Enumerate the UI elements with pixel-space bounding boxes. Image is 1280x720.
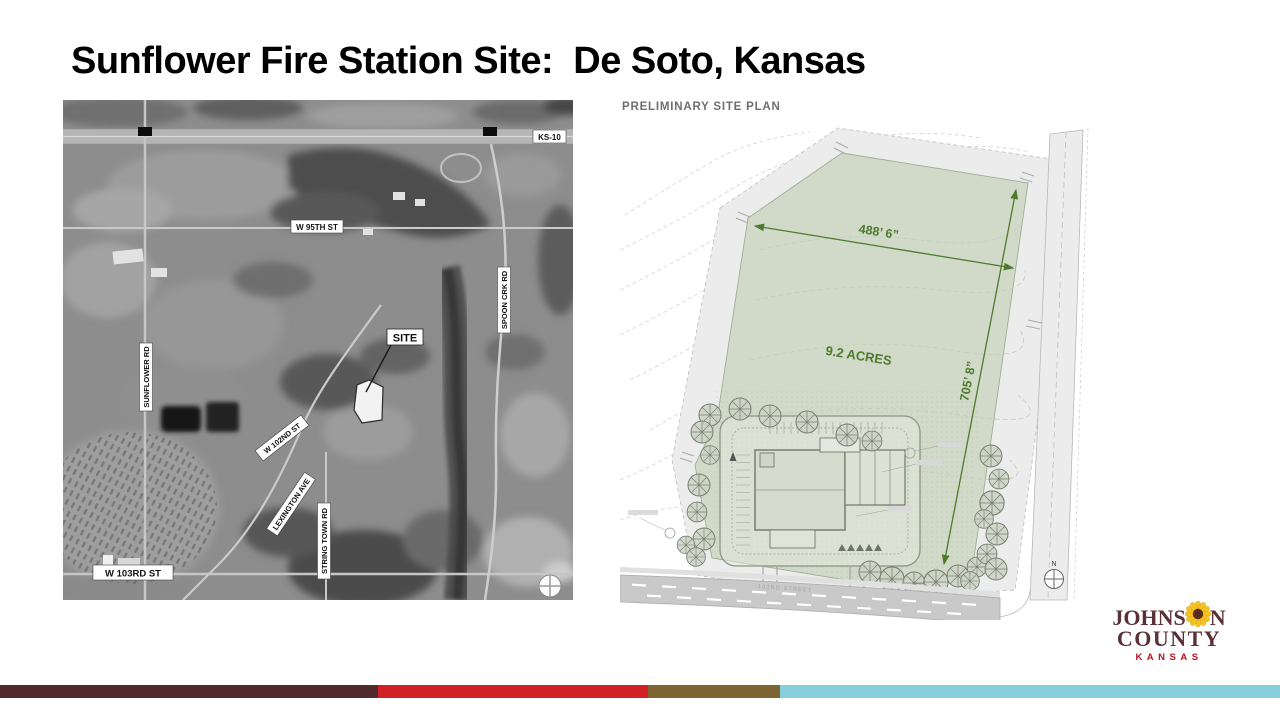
north-label: N bbox=[1051, 561, 1056, 568]
spoon-creek-label: SPOON CRK RD bbox=[498, 267, 511, 333]
svg-text:SUNFLOWER RD: SUNFLOWER RD bbox=[142, 346, 151, 408]
logo-line1: JOHNS N bbox=[1112, 601, 1226, 628]
w95th-label: W 95TH ST bbox=[291, 220, 343, 233]
logo-state: KANSAS bbox=[1112, 652, 1226, 663]
johnson-county-logo: JOHNS N bbox=[1112, 601, 1226, 663]
overpass-west bbox=[138, 127, 152, 136]
svg-text:STRING TOWN RD: STRING TOWN RD bbox=[320, 507, 329, 574]
svg-text:KS-10: KS-10 bbox=[538, 133, 561, 142]
aerial-map-image: SITE KS-10 W 95TH ST SUNFLOWER RD bbox=[63, 100, 573, 600]
svg-text:W 95TH ST: W 95TH ST bbox=[296, 223, 338, 232]
aerial-map: SITE KS-10 W 95TH ST SUNFLOWER RD bbox=[63, 100, 573, 600]
site-label: SITE bbox=[393, 333, 417, 345]
svg-text:W 103RD ST: W 103RD ST bbox=[105, 569, 161, 580]
site-plan-image: 102ND STREET 488’ 6” 705’ 8” 9.2 ACRES bbox=[620, 120, 1090, 620]
stripe-olive bbox=[648, 685, 780, 698]
creek-corridor bbox=[447, 268, 462, 600]
site-plan: 102ND STREET 488’ 6” 705’ 8” 9.2 ACRES bbox=[620, 120, 1090, 620]
sunflower-rd-label: SUNFLOWER RD bbox=[140, 343, 153, 411]
stripe-dark-maroon bbox=[0, 685, 378, 698]
overpass-east bbox=[483, 127, 497, 136]
ks10-label: KS-10 bbox=[533, 130, 566, 143]
w103rd-label: W 103RD ST bbox=[93, 565, 173, 580]
logo-county: COUNTY bbox=[1112, 628, 1226, 649]
string-town-label: STRING TOWN RD bbox=[318, 503, 331, 579]
footer-stripe-bar bbox=[0, 685, 1280, 698]
site-plan-heading: PRELIMINARY SITE PLAN bbox=[622, 101, 781, 113]
logo-name-prefix: JOHNS bbox=[1112, 608, 1185, 628]
stripe-red bbox=[378, 685, 648, 698]
sunflower-icon bbox=[1185, 601, 1211, 627]
slide: Sunflower Fire Station Site: De Soto, Ka… bbox=[0, 0, 1280, 720]
svg-text:SPOON CRK RD: SPOON CRK RD bbox=[500, 270, 509, 329]
page-title: Sunflower Fire Station Site: De Soto, Ka… bbox=[71, 40, 866, 83]
aerial-compass-icon bbox=[539, 575, 561, 597]
stripe-sky-blue bbox=[780, 685, 1280, 698]
logo-name-suffix: N bbox=[1210, 608, 1226, 628]
